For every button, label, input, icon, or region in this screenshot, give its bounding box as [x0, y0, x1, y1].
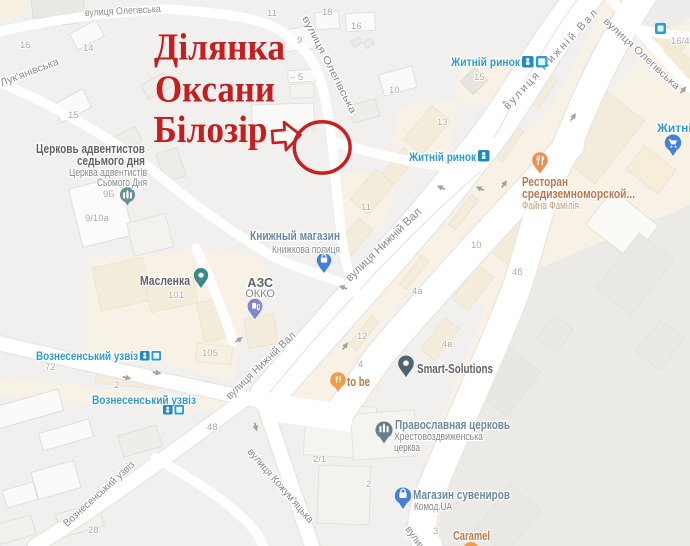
svg-text:Масленка: Масленка	[140, 274, 191, 288]
svg-text:12: 12	[357, 331, 368, 342]
svg-text:13: 13	[437, 117, 448, 128]
svg-text:4в: 4в	[442, 339, 452, 350]
svg-text:16: 16	[20, 40, 31, 51]
svg-text:101: 101	[168, 290, 184, 301]
svg-text:Книжный магазин: Книжный магазин	[250, 229, 340, 243]
svg-text:11: 11	[267, 8, 277, 19]
svg-text:2: 2	[366, 479, 371, 490]
svg-text:9Б: 9Б	[103, 189, 115, 200]
svg-text:Caramel: Caramel	[453, 529, 490, 543]
svg-text:Житній ринок: Житній ринок	[450, 55, 521, 69]
svg-text:105: 105	[202, 348, 218, 359]
svg-text:Файна Фамілія: Файна Фамілія	[522, 200, 579, 212]
svg-text:10: 10	[471, 240, 482, 251]
svg-text:18: 18	[322, 7, 333, 18]
svg-text:2: 2	[114, 380, 119, 391]
svg-text:Вознесенський узвіз: Вознесенський узвіз	[36, 349, 138, 363]
svg-text:Житній ринок: Житній ринок	[408, 150, 477, 164]
svg-text:средиземноморской...: средиземноморской...	[522, 187, 635, 201]
svg-text:3: 3	[433, 526, 438, 537]
svg-text:ОККО: ОККО	[245, 288, 275, 300]
svg-text:Ділянка: Ділянка	[154, 27, 285, 69]
svg-text:Комод.UA: Комод.UA	[414, 501, 452, 513]
svg-text:– 5: – 5	[290, 72, 303, 83]
svg-text:Smart-Solutions: Smart-Solutions	[417, 362, 493, 376]
svg-text:4б: 4б	[512, 267, 523, 278]
svg-text:11: 11	[361, 202, 371, 213]
svg-text:церква: церква	[394, 442, 421, 454]
svg-text:Білозір: Білозір	[154, 109, 268, 151]
svg-text:48: 48	[207, 422, 218, 433]
svg-text:2/1: 2/1	[313, 454, 326, 465]
svg-text:9: 9	[297, 35, 302, 46]
svg-text:16: 16	[351, 21, 362, 32]
svg-text:15: 15	[474, 72, 485, 83]
svg-text:14: 14	[83, 43, 94, 54]
svg-text:15: 15	[68, 110, 79, 121]
svg-text:Книжкова полиця: Книжкова полиця	[272, 244, 340, 256]
svg-text:Сьомого Дня: Сьомого Дня	[97, 177, 147, 189]
svg-text:седьмого дня: седьмого дня	[77, 154, 145, 168]
svg-text:16/4: 16/4	[671, 36, 690, 47]
svg-text:Магазин сувениров: Магазин сувениров	[413, 488, 510, 502]
svg-text:9/10а: 9/10а	[85, 213, 109, 224]
svg-text:Вознесенський узвіз: Вознесенський узвіз	[92, 393, 196, 407]
svg-text:Житній: Житній	[656, 121, 690, 135]
svg-text:72: 72	[45, 362, 56, 373]
svg-text:28: 28	[88, 525, 99, 536]
svg-text:4: 4	[358, 359, 363, 370]
svg-text:Оксани: Оксани	[155, 69, 275, 111]
svg-text:10: 10	[389, 85, 400, 96]
svg-text:4а: 4а	[412, 286, 423, 297]
svg-text:to be: to be	[347, 375, 370, 389]
svg-text:Православная церковь: Православная церковь	[395, 418, 510, 432]
